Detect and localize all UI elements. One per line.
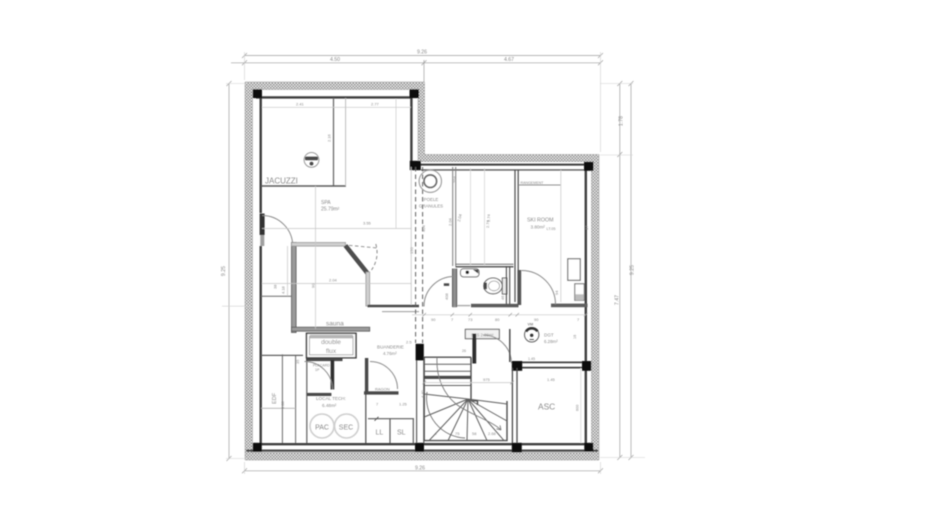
svg-text:SL: SL (397, 430, 406, 437)
svg-text:4.18: 4.18 (281, 285, 286, 294)
svg-text:2.77: 2.77 (371, 102, 380, 107)
svg-text:17: 17 (584, 225, 589, 230)
svg-text:6.28m²: 6.28m² (544, 339, 558, 344)
svg-text:2.16: 2.16 (327, 133, 332, 142)
svg-text:sauna: sauna (326, 321, 344, 328)
svg-text:flux: flux (326, 348, 337, 355)
svg-text:SPA: SPA (321, 200, 331, 206)
svg-text:LL: LL (376, 430, 384, 437)
svg-text:ASC: ASC (538, 402, 555, 412)
svg-text:16: 16 (573, 335, 577, 339)
svg-text:9.25: 9.25 (221, 266, 227, 276)
svg-text:1P: 1P (315, 368, 320, 372)
svg-text:3.55: 3.55 (363, 221, 372, 226)
svg-text:RANGEMENT: RANGEMENT (521, 181, 545, 185)
svg-text:4.76m²: 4.76m² (383, 351, 397, 356)
svg-text:58: 58 (472, 431, 477, 436)
svg-text:150: 150 (409, 247, 414, 254)
svg-text:2.68: 2.68 (488, 431, 497, 436)
svg-text:2.04: 2.04 (329, 278, 338, 283)
svg-text:90: 90 (431, 317, 436, 322)
svg-text:75: 75 (455, 431, 460, 436)
svg-text:BUANDERIE: BUANDERIE (377, 345, 404, 350)
svg-text:46: 46 (500, 295, 505, 300)
svg-text:94: 94 (554, 290, 559, 295)
svg-text:73: 73 (468, 317, 473, 322)
svg-text:600: 600 (576, 405, 580, 411)
svg-text:SKI ROOM: SKI ROOM (527, 218, 554, 224)
svg-text:2.74: 2.74 (485, 219, 490, 228)
svg-text:90: 90 (311, 283, 316, 288)
svg-text:1.78: 1.78 (618, 116, 624, 126)
svg-text:PAC: PAC (315, 425, 329, 432)
svg-text:9.26: 9.26 (417, 50, 427, 56)
svg-text:4.50: 4.50 (330, 57, 340, 63)
svg-text:1.25: 1.25 (399, 402, 408, 407)
svg-text:POELE: POELE (424, 197, 439, 202)
svg-text:25.79m²: 25.79m² (321, 207, 340, 213)
svg-text:4.67: 4.67 (504, 57, 514, 63)
svg-text:9.26: 9.26 (415, 465, 425, 471)
svg-text:LOCAL TECH:: LOCAL TECH: (316, 396, 346, 401)
svg-text:1.45: 1.45 (528, 357, 535, 361)
svg-text:3.80m²: 3.80m² (531, 225, 546, 230)
svg-text:DGT: DGT (544, 333, 554, 338)
svg-text:80: 80 (495, 317, 500, 322)
svg-text:90: 90 (534, 317, 539, 322)
svg-text:LT.05: LT.05 (547, 227, 556, 231)
svg-text:GRANULES: GRANULES (419, 204, 443, 209)
svg-text:7.47: 7.47 (615, 295, 621, 305)
svg-text:6.48m²: 6.48m² (322, 403, 337, 408)
svg-text:408: 408 (444, 293, 449, 300)
svg-text:38: 38 (273, 284, 278, 289)
svg-text:2.5: 2.5 (406, 340, 412, 345)
svg-text:RAGON: RAGON (375, 386, 390, 391)
svg-text:VM: VM (528, 323, 534, 327)
svg-text:JACUZZI: JACUZZI (265, 177, 298, 186)
svg-text:SEC: SEC (339, 425, 353, 432)
svg-text:35: 35 (295, 359, 300, 364)
svg-text:9.25: 9.25 (630, 265, 636, 275)
svg-text:975: 975 (483, 377, 490, 382)
svg-text:404: 404 (421, 225, 426, 232)
svg-text:204: 204 (452, 176, 457, 183)
svg-text:EDF: EDF (272, 392, 278, 404)
svg-text:4.40: 4.40 (420, 389, 425, 398)
svg-text:26: 26 (462, 349, 466, 353)
svg-text:2.04: 2.04 (448, 217, 453, 226)
svg-text:1.45: 1.45 (547, 377, 556, 382)
svg-text:double: double (321, 339, 341, 346)
svg-text:2.41: 2.41 (296, 102, 305, 107)
